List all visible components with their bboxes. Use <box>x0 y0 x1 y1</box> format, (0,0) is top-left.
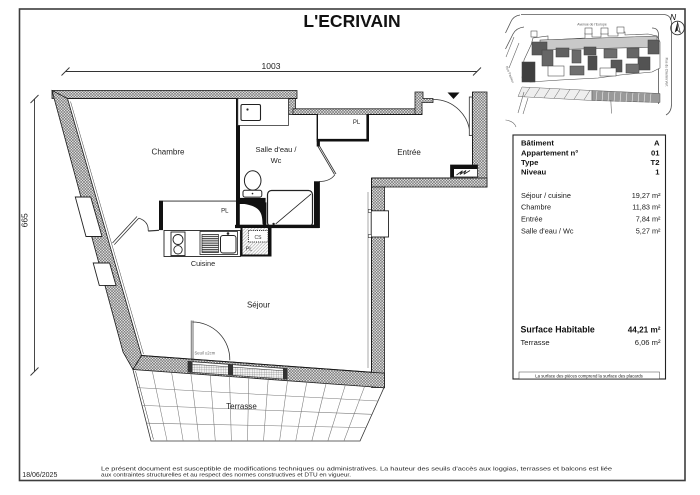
svg-text:Salle d'eau /: Salle d'eau / <box>255 145 297 154</box>
svg-text:Type: Type <box>521 158 539 167</box>
svg-text:Cuisine: Cuisine <box>191 259 215 268</box>
svg-text:Chambre: Chambre <box>521 203 551 212</box>
svg-text:T2: T2 <box>651 158 660 167</box>
svg-text:Rue du Chemin Vert: Rue du Chemin Vert <box>665 58 669 87</box>
svg-text:5,27 m²: 5,27 m² <box>636 227 661 236</box>
svg-text:Appartement n°: Appartement n° <box>521 148 578 157</box>
svg-text:Bâtiment: Bâtiment <box>521 139 554 148</box>
svg-text:Salle d'eau / Wc: Salle d'eau / Wc <box>521 227 574 236</box>
svg-text:Entrée: Entrée <box>521 215 543 224</box>
svg-text:A: A <box>654 139 660 148</box>
svg-text:44,21 m²: 44,21 m² <box>628 325 661 334</box>
svg-text:N: N <box>670 12 677 22</box>
svg-text:Chambre: Chambre <box>152 148 185 157</box>
svg-text:Avenue de l'Europe: Avenue de l'Europe <box>577 23 607 27</box>
svg-text:Seuil ≤2cm: Seuil ≤2cm <box>195 351 216 356</box>
svg-text:Surface Habitable: Surface Habitable <box>521 324 595 334</box>
svg-text:01: 01 <box>651 148 660 157</box>
svg-text:Wc: Wc <box>271 156 282 165</box>
svg-text:PL: PL <box>353 120 361 126</box>
svg-text:7,84 m²: 7,84 m² <box>636 215 661 224</box>
svg-text:1003: 1003 <box>262 61 281 71</box>
svg-text:aux contraintes structurelles: aux contraintes structurelles et au resp… <box>101 472 351 478</box>
svg-text:Terrasse: Terrasse <box>226 402 257 411</box>
svg-text:PL: PL <box>246 247 253 253</box>
svg-text:PL: PL <box>221 209 229 215</box>
svg-text:1: 1 <box>655 168 660 177</box>
svg-text:Entrée: Entrée <box>397 148 421 157</box>
svg-text:Séjour: Séjour <box>247 301 270 310</box>
svg-text:Séjour / cuisine: Séjour / cuisine <box>521 191 571 200</box>
svg-text:Niveau: Niveau <box>521 168 547 177</box>
svg-text:18/06/2025: 18/06/2025 <box>22 472 57 479</box>
svg-text:665: 665 <box>20 213 30 227</box>
svg-text:Terrasse: Terrasse <box>521 338 550 347</box>
svg-text:CS: CS <box>255 235 263 241</box>
svg-text:L'ECRIVAIN: L'ECRIVAIN <box>303 11 400 31</box>
svg-text:19,27 m²: 19,27 m² <box>632 191 661 200</box>
svg-text:11,83 m²: 11,83 m² <box>632 203 661 212</box>
svg-text:6,06 m²: 6,06 m² <box>635 338 661 347</box>
svg-text:La surface des pièces comprend: La surface des pièces comprend la surfac… <box>535 373 642 378</box>
